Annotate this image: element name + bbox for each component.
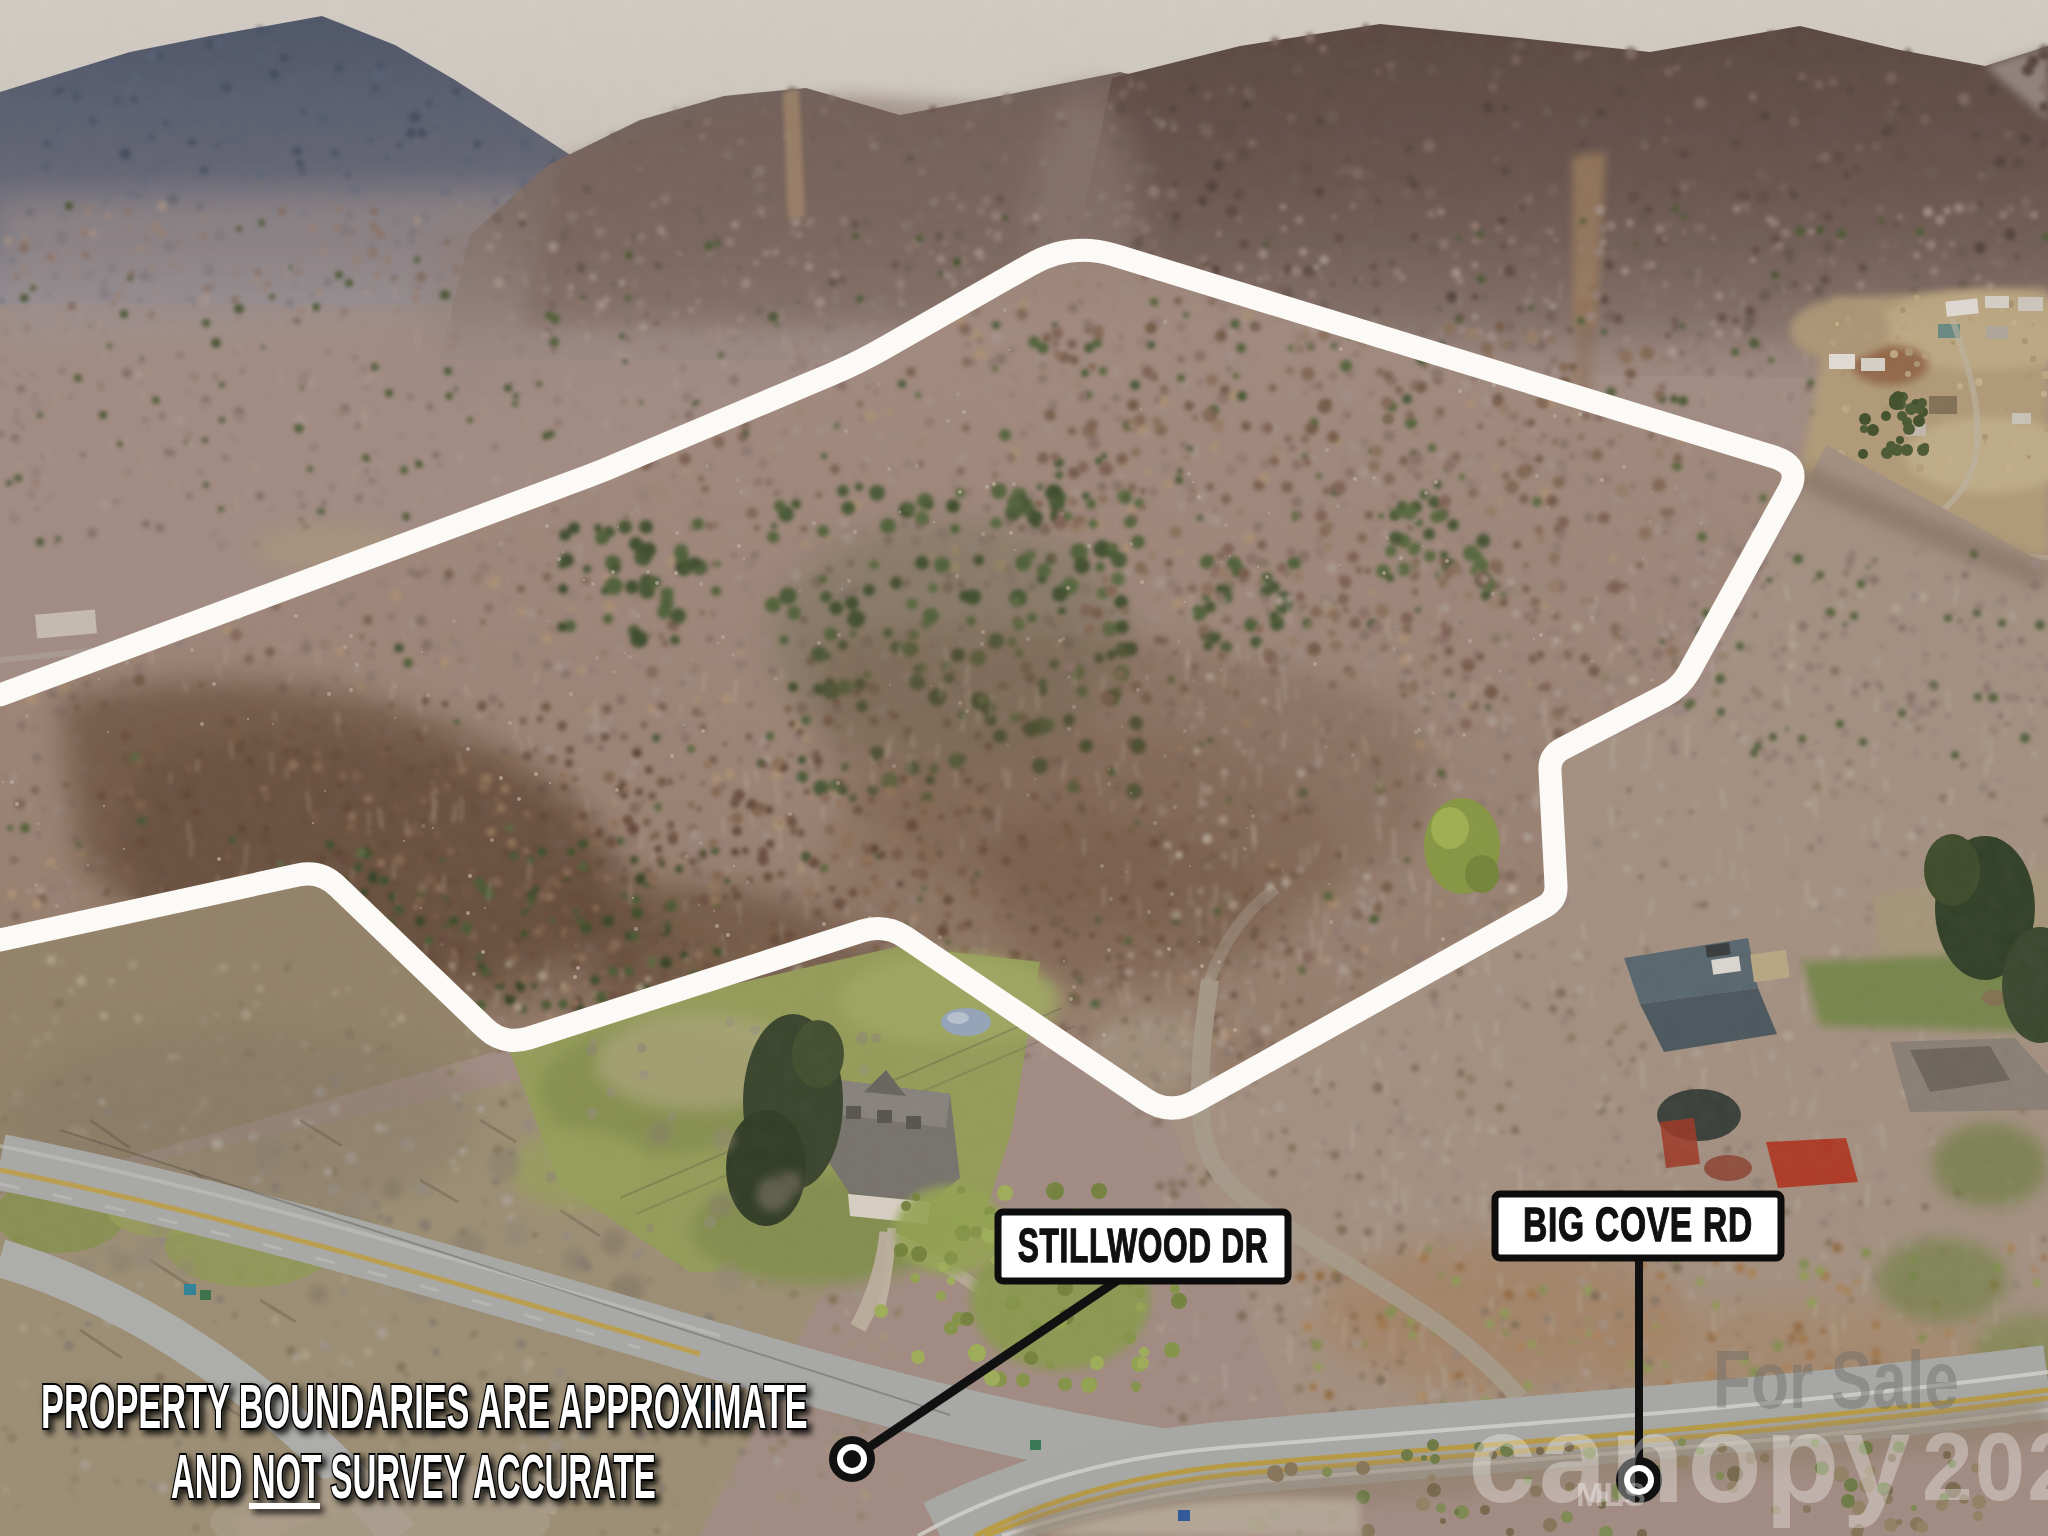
- svg-text:2025: 2025: [1922, 1413, 2048, 1521]
- svg-text:STILLWOOD DR: STILLWOOD DR: [1018, 1218, 1269, 1272]
- svg-text:BIG COVE RD: BIG COVE RD: [1523, 1197, 1753, 1251]
- svg-text:AND NOT SURVEY ACCURATE: AND NOT SURVEY ACCURATE: [171, 1440, 656, 1511]
- svg-text:canopy: canopy: [1468, 1388, 1913, 1528]
- svg-text:PROPERTY BOUNDARIES ARE APPROX: PROPERTY BOUNDARIES ARE APPROXIMATE: [41, 1371, 808, 1442]
- svg-text:MLS: MLS: [1576, 1476, 1646, 1513]
